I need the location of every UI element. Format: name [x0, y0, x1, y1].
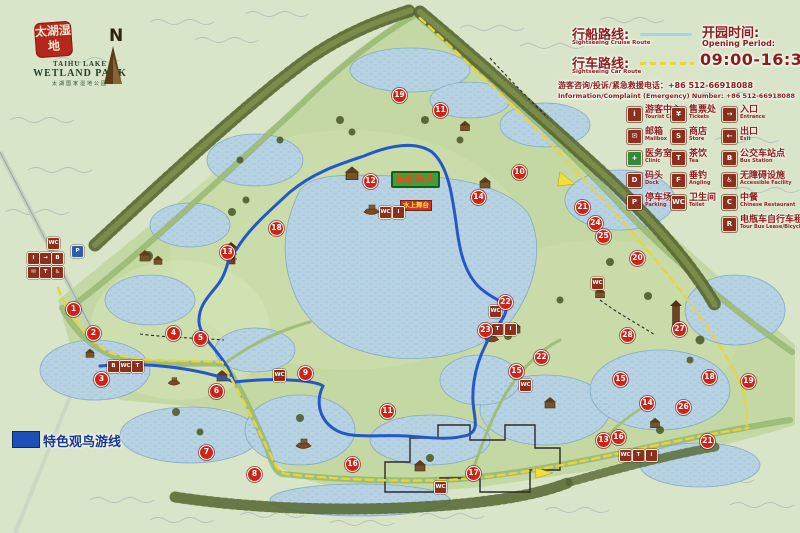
map-marker-11: 11: [380, 404, 395, 419]
map-marker-21: 21: [575, 200, 590, 215]
map-facility-icon-i: i: [392, 206, 405, 219]
tourist-center-icon: i: [627, 107, 642, 122]
tickets-icon: ¥: [671, 107, 686, 122]
parking-icon: P: [627, 195, 642, 210]
map-marker-4: 4: [166, 326, 181, 341]
legend-item-toilet: WC卫生间Toilet: [671, 194, 716, 216]
compass-north-label: N: [109, 26, 123, 46]
map-marker-9: 9: [298, 366, 313, 381]
map-marker-22: 22: [534, 350, 549, 365]
legend-item-bus-station: B公交车站点Bus Station: [722, 150, 800, 172]
map-marker-5: 5: [193, 331, 208, 346]
map-marker-22: 22: [498, 295, 513, 310]
legend-item-tickets: ¥售票处Tickets: [671, 106, 716, 128]
map-facility-icon-wc: WC: [434, 481, 447, 494]
legend-item-exit: ←出口Exit: [722, 128, 800, 150]
car-route-line-swatch: [640, 62, 694, 65]
map-marker-18: 18: [269, 221, 284, 236]
map-marker-27: 27: [672, 322, 687, 337]
map-facility-icon-wc: WC: [273, 369, 286, 382]
map-facility-icon-t: T: [131, 360, 144, 373]
map-facility-icon-wc: WC: [591, 277, 604, 290]
map-marker-8: 8: [247, 467, 262, 482]
tour-bus-lease-bicycle-lease-icon: R: [722, 217, 737, 232]
legend-item-chinese-restaurant: C中餐Chinese Restaurant: [722, 194, 800, 216]
map-marker-3: 3: [94, 372, 109, 387]
legend-item-entrance: →入口Entrance: [722, 106, 800, 128]
opening-period-label-en: Opening Period:: [702, 39, 775, 48]
bird-route-swatch: [12, 431, 40, 448]
hotline-en: Information/Complaint (Emergency) Number…: [558, 92, 795, 100]
map-marker-16: 16: [345, 457, 360, 472]
tea-icon: T: [671, 151, 686, 166]
green-sign: 游船码头: [391, 171, 440, 188]
compass-arrow-shade: [113, 56, 122, 84]
map-marker-19: 19: [392, 88, 407, 103]
map-marker-12: 12: [363, 174, 378, 189]
cruise-route-label-en: Sightseeing Cruise Route: [572, 40, 650, 46]
park-map: 太湖湿地 TAIHU LAKE WETLAND PARK 太湖国家湿地公园 N …: [0, 0, 800, 533]
map-marker-6: 6: [209, 384, 224, 399]
bird-route-label: 特色观鸟游线: [43, 431, 121, 450]
map-marker-7: 7: [199, 445, 214, 460]
map-marker-15: 15: [509, 364, 524, 379]
map-marker-15: 15: [613, 372, 628, 387]
store-icon: S: [671, 129, 686, 144]
map-marker-13: 13: [596, 433, 611, 448]
map-facility-icon-t: T: [632, 449, 645, 462]
clinic-icon: +: [627, 151, 642, 166]
map-facility-icon-: ♿: [51, 266, 64, 279]
map-marker-19: 19: [741, 374, 756, 389]
map-facility-icon-wc: WC: [47, 237, 60, 250]
mailbox-icon: ✉: [627, 129, 642, 144]
exit-icon: ←: [722, 129, 737, 144]
map-marker-1: 1: [66, 302, 81, 317]
map-marker-10: 10: [512, 165, 527, 180]
map-marker-28: 28: [620, 328, 635, 343]
map-marker-25: 25: [596, 229, 611, 244]
toilet-icon: WC: [671, 195, 686, 210]
angling-icon: F: [671, 173, 686, 188]
opening-hours: 09:00-16:30: [700, 50, 800, 69]
map-facility-icon-i: i: [504, 323, 517, 336]
dock-icon: D: [627, 173, 642, 188]
map-marker-13: 13: [220, 245, 235, 260]
hotline-zh: 游客咨询/投诉/紧急救援电话：+86 512-66918088: [558, 80, 753, 91]
facilities-legend-column-3: →入口Entrance←出口ExitB公交车站点Bus Station♿无障碍设…: [722, 106, 800, 238]
map-marker-14: 14: [640, 396, 655, 411]
compass: N: [100, 26, 134, 96]
map-facility-icon-wc: WC: [619, 449, 632, 462]
car-route-label-en: Sightseeing Car Route: [572, 69, 641, 75]
map-marker-16: 16: [611, 430, 626, 445]
map-marker-2: 2: [86, 326, 101, 341]
map-facility-icon-p: P: [71, 245, 84, 258]
map-facility-icon-wc: WC: [379, 206, 392, 219]
map-marker-18: 18: [702, 370, 717, 385]
map-facility-icon-wc: WC: [519, 379, 532, 392]
legend-item-store: S商店Store: [671, 128, 716, 150]
map-marker-11: 11: [433, 103, 448, 118]
entrance-icon: →: [722, 107, 737, 122]
chinese-restaurant-icon: C: [722, 195, 737, 210]
map-marker-20: 20: [630, 251, 645, 266]
accessible-facility-icon: ♿: [722, 173, 737, 188]
cruise-route-line-swatch: [640, 33, 692, 36]
legend-item-tour-bus-lease-bicycle-lease: R电瓶车自行车租赁Tour Bus Lease/Bicycle Lease: [722, 216, 800, 238]
map-marker-17: 17: [466, 466, 481, 481]
map-marker-23: 23: [478, 323, 493, 338]
map-facility-icon-b: B: [51, 252, 64, 265]
map-marker-21: 21: [700, 434, 715, 449]
legend-item-angling: F垂钓Angling: [671, 172, 716, 194]
map-facility-icon-i: i: [645, 449, 658, 462]
legend-item-tea: T茶饮Tea: [671, 150, 716, 172]
bus-station-icon: B: [722, 151, 737, 166]
legend-item-accessible-facility: ♿无障碍设施Accessible Facility: [722, 172, 800, 194]
map-marker-26: 26: [676, 400, 691, 415]
map-marker-14: 14: [471, 190, 486, 205]
logo-seal: 太湖湿地: [34, 21, 73, 58]
facilities-legend-column-2: ¥售票处TicketsS商店StoreT茶饮TeaF垂钓AnglingWC卫生间…: [671, 106, 716, 216]
